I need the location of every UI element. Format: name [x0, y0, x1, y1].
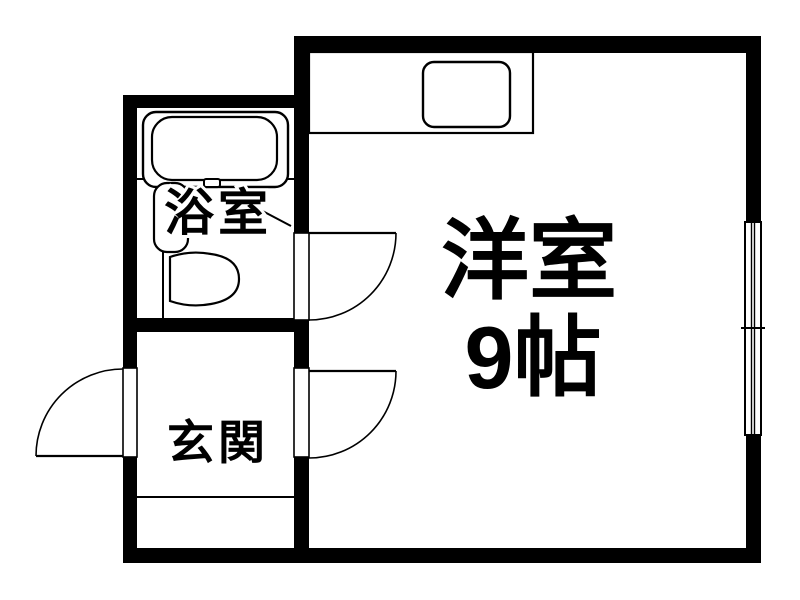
bathtub-icon	[143, 112, 288, 187]
wall-left-lower	[123, 457, 137, 563]
front-door-swing-arc	[36, 369, 123, 456]
bathroom-door	[309, 233, 396, 320]
sliding-window	[741, 222, 765, 435]
kitchen-sink-icon	[423, 62, 510, 127]
entrance-room-door-swing-arc	[309, 371, 396, 458]
entrance-label: 玄関	[167, 416, 269, 469]
wall-top-main	[294, 36, 761, 53]
wall-bath-entrance-divider	[123, 318, 309, 332]
western-room-size-label: 9帖	[465, 308, 602, 407]
floor-plan-drawing: 浴室 玄関 洋室 9帖	[0, 0, 800, 600]
wall-center-upper	[294, 36, 309, 233]
wall-center-mid	[294, 320, 309, 368]
toilet-icon	[170, 253, 239, 306]
wall-right-upper	[746, 36, 761, 222]
wall-right-lower	[746, 435, 761, 563]
floor-plan: 浴室 玄関 洋室 9帖	[0, 0, 800, 600]
bathroom-door-opening	[294, 233, 309, 320]
front-door	[36, 369, 123, 456]
wall-bathroom-top	[123, 95, 309, 108]
wall-bottom	[123, 548, 761, 563]
entrance-room-door	[309, 371, 396, 458]
wall-center-lower	[294, 457, 309, 563]
bathroom-label: 浴室	[164, 185, 272, 241]
bathroom-door-swing-arc	[309, 233, 396, 320]
entrance-room-door-opening	[294, 368, 309, 457]
kitchen-counter	[309, 52, 533, 133]
western-room-label: 洋室	[441, 211, 617, 310]
front-door-opening	[123, 368, 137, 457]
